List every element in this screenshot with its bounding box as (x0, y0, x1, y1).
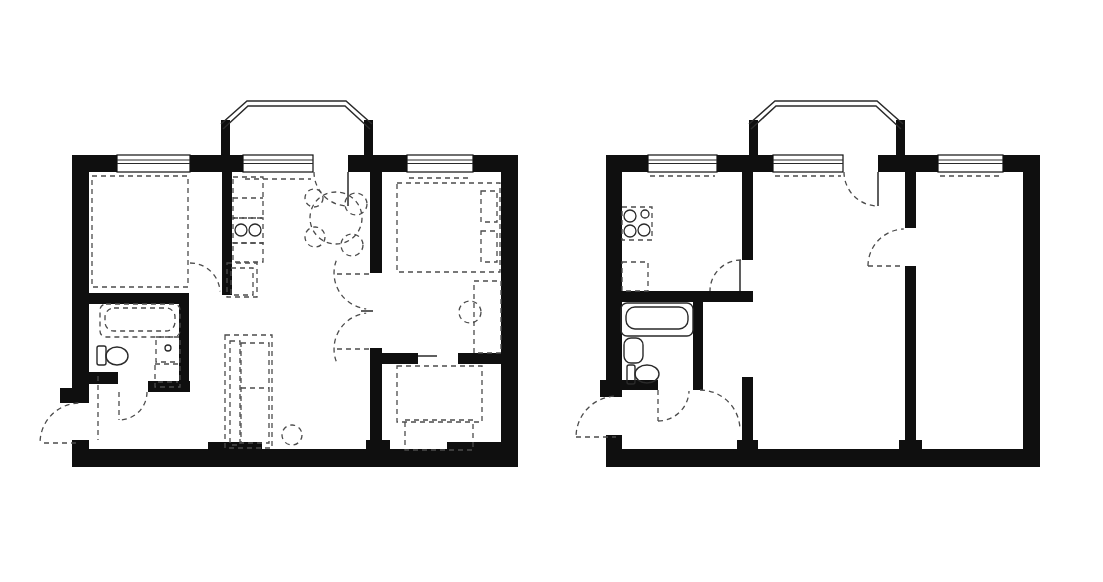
outer-wall-bottom (606, 449, 1040, 467)
bathtub (100, 304, 180, 337)
bedroom-door-swing (190, 263, 220, 291)
room-door-swing (868, 229, 904, 266)
balcony-door-swing (844, 172, 878, 206)
bay-outline-outer (221, 101, 372, 124)
bathroom-wall-nub (693, 380, 703, 390)
pillow-2 (481, 231, 497, 262)
outer-wall-top-3 (348, 155, 407, 172)
washbasin (156, 337, 180, 362)
hall-partition-upper (370, 172, 382, 273)
bathroom-door-swing (658, 391, 689, 421)
outer-wall-right (1023, 155, 1040, 467)
french-door-swing-top (334, 261, 366, 309)
window-kitchen (648, 155, 717, 172)
outer-wall-top-4 (473, 155, 518, 172)
floor-plan-right-unfurnished (576, 101, 1040, 467)
outer-wall-left-upper (72, 155, 89, 388)
toilet-bowl (106, 347, 128, 365)
hall-door-swing (700, 390, 740, 428)
wardrobe-side (230, 341, 240, 445)
dining-chair-4 (341, 234, 363, 256)
pier-childroom (447, 442, 503, 450)
kitchen-partition-upper (742, 172, 753, 260)
bed-child-head (397, 366, 482, 422)
french-door-swing-bottom (334, 313, 366, 361)
bathroom-wall-bottom (606, 380, 658, 390)
stove-burner-1 (624, 210, 636, 222)
window-bay (773, 155, 843, 172)
floor-plan-left-furnished (40, 101, 518, 467)
wardrobe-inner (241, 343, 269, 443)
outer-wall-top-3 (878, 155, 938, 172)
washbasin-drain (165, 345, 171, 351)
window-living (407, 155, 473, 172)
dining-chair-1 (305, 189, 323, 207)
bay-outline-outer (749, 101, 903, 124)
entrance-door-swing (576, 396, 616, 435)
bedroom-partition (89, 293, 188, 304)
bathtub-inner (105, 308, 175, 331)
pier-wardrobe (208, 442, 262, 450)
kitchen-door-swing (710, 260, 741, 291)
outer-wall-top-2 (190, 155, 243, 172)
outer-wall-top-2 (717, 155, 773, 172)
dining-chair-3 (305, 227, 325, 247)
pier-hall (366, 440, 390, 449)
hall-partition-lower (742, 377, 753, 449)
bathroom-wall-right (693, 302, 703, 382)
bathroom-wall-top (606, 291, 753, 302)
kitchen-stove (233, 218, 263, 243)
stove-burner-4 (638, 224, 650, 236)
stove-burner-left (235, 224, 247, 236)
toilet-tank (97, 346, 106, 365)
bed-living (397, 183, 500, 272)
dining-table (310, 192, 362, 244)
bay-outline-inner (223, 106, 370, 129)
outer-wall-top-1 (606, 155, 648, 172)
entry-pier (60, 388, 89, 403)
room-partition-upper (905, 172, 916, 228)
bathroom-door-swing (119, 392, 147, 420)
window-room (938, 155, 1003, 172)
floor-plans-canvas (0, 0, 1103, 582)
bay-outline-inner (751, 106, 901, 129)
outer-wall-bottom (72, 449, 518, 467)
pier-room (899, 440, 922, 449)
entrance-door-swing (40, 403, 79, 441)
pillow-1 (481, 191, 497, 222)
stove-burner-3 (624, 225, 636, 237)
pier-hall (737, 440, 758, 449)
floor-plans-page (0, 0, 1103, 582)
desk-chair (459, 301, 481, 323)
outer-wall-right (501, 155, 518, 467)
childroom-wall-left (372, 353, 418, 364)
hall-stool (282, 425, 302, 445)
stove-burner-right (249, 224, 261, 236)
wardrobe (225, 335, 272, 448)
outer-wall-top-1 (72, 155, 117, 172)
window-bay (243, 155, 313, 172)
room-partition-lower (905, 266, 916, 449)
kitchen-counter (622, 262, 648, 291)
kitchen-cabinet-inner (231, 268, 253, 295)
window-bedroom (117, 155, 190, 172)
kitchen-partition (222, 172, 232, 295)
bathtub-inner (626, 307, 688, 329)
washbasin (624, 338, 643, 363)
outer-wall-left-upper (606, 155, 622, 380)
entry-wall-nub (85, 372, 118, 384)
stove-burner-2 (641, 210, 649, 218)
desk (474, 281, 501, 353)
bed-double (92, 176, 188, 287)
kitchen-counter-lower (233, 243, 263, 262)
balcony-door-swing (314, 172, 348, 206)
outer-wall-top-4 (1003, 155, 1040, 172)
childroom-wall-right (458, 353, 502, 364)
